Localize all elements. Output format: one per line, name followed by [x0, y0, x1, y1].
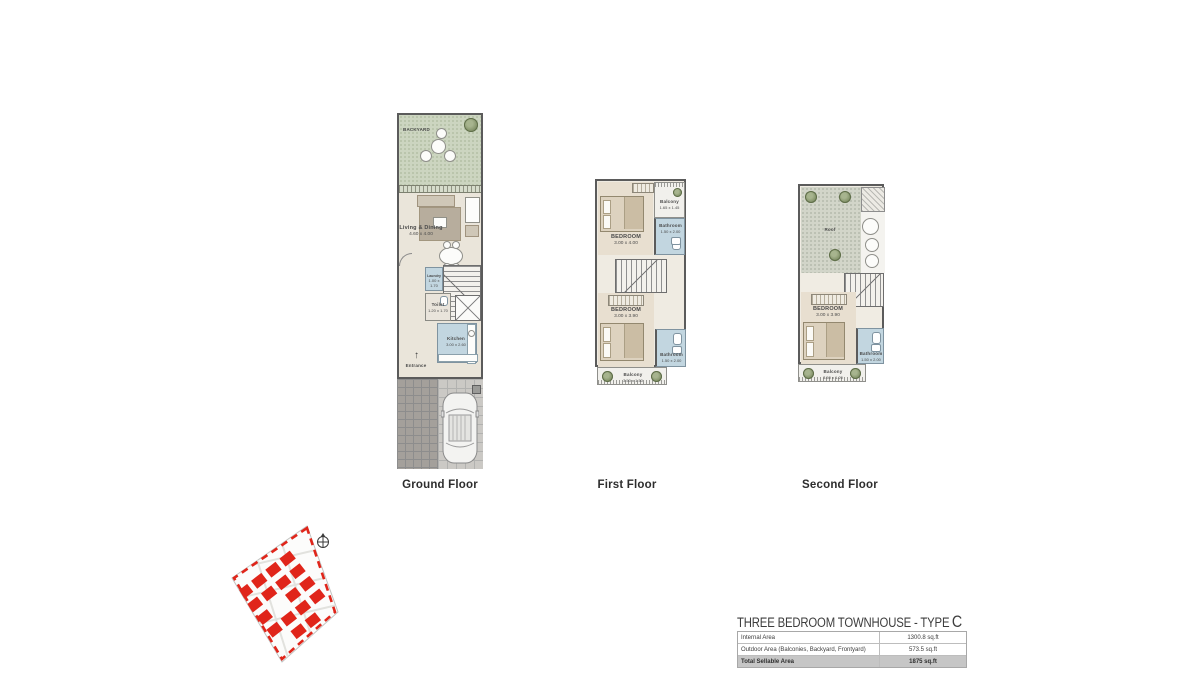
bathroom: Bathroom 1.50 x 2.00 — [856, 328, 884, 364]
bathroom-bottom: Bathroom 1.50 x 2.00 — [655, 329, 686, 367]
bedroom-bottom-dims: 3.00 x 3.90 — [602, 314, 650, 320]
ground-floor-caption: Ground Floor — [380, 479, 500, 491]
bathroom-top: Bathroom 1.50 x 2.00 — [654, 218, 685, 255]
ground-floor-plan: BACKYARD Living & Dining 4.60 x 4.00 — [397, 113, 483, 469]
plant-icon — [803, 368, 814, 379]
bathroom-top-label: Bathroom — [656, 223, 685, 229]
dining-chair-icon — [452, 241, 460, 249]
bedroom-dims: 3.00 x 3.90 — [805, 313, 851, 319]
bedroom-bottom-label: BEDROOM — [602, 307, 650, 314]
pouf-icon — [862, 218, 879, 235]
tree-icon — [464, 118, 478, 132]
balcony-top-dims: 1.65 x 1.45 — [655, 205, 684, 210]
door-swing — [399, 253, 412, 266]
toilet-icon — [872, 332, 881, 344]
bathroom-bottom-dims: 1.50 x 2.00 — [657, 358, 686, 363]
first-built-area: BEDROOM 3.00 x 4.00 Balcony 1.65 x 1.45 … — [595, 179, 686, 367]
second-built-area: Roof BEDROOM 3.00 x 3.90 — [798, 184, 884, 364]
patio-table-icon — [431, 139, 446, 154]
balcony: Balcony 3.50 x 1.20 — [798, 364, 866, 382]
pouf-icon — [865, 238, 879, 252]
row-value: 1875 sq.ft — [879, 656, 966, 667]
plant-icon — [602, 371, 613, 382]
plant-icon — [673, 188, 682, 197]
pouf-icon — [865, 254, 879, 268]
entrance-area: ↑ Entrance — [401, 349, 433, 379]
bedroom-top-label: BEDROOM — [602, 234, 650, 241]
kitchen-dims: 3.00 x 2.60 — [440, 342, 472, 347]
staircase — [615, 259, 667, 293]
driveway — [397, 379, 483, 469]
driveway-pavers — [397, 379, 437, 469]
unit-title: THREE BEDROOM TOWNHOUSE - TYPEC — [737, 612, 955, 632]
dining-chair-icon — [443, 241, 451, 249]
plant-icon — [829, 249, 841, 261]
patio-chair-icon — [436, 128, 447, 139]
laundry-dims: 1.00 x 1.70 — [426, 278, 442, 288]
toilet-dims: 1.20 x 1.70 — [426, 308, 450, 313]
tv-unit-icon — [465, 197, 480, 223]
pergola — [861, 187, 885, 212]
bedroom-top: BEDROOM 3.00 x 4.00 — [598, 182, 653, 255]
roof-terrace: Roof — [801, 187, 861, 273]
bathroom-dims: 1.50 x 2.00 — [858, 357, 884, 362]
backyard-room: BACKYARD — [399, 115, 481, 185]
plant-icon — [651, 371, 662, 382]
dining-table-icon — [439, 247, 463, 265]
first-floor-plan: BEDROOM 3.00 x 4.00 Balcony 1.65 x 1.45 … — [595, 179, 686, 385]
wardrobe — [608, 295, 644, 306]
table-row: Outdoor Area (Balconies, Backyard, Front… — [738, 643, 966, 655]
plant-icon — [805, 191, 817, 203]
plant-icon — [850, 368, 861, 379]
laundry-room: Laundry 1.00 x 1.70 — [425, 267, 443, 291]
balcony-dims: 3.50 x 1.20 — [816, 375, 850, 380]
kitchen-counter — [438, 354, 478, 362]
roof-side-strip — [861, 212, 885, 273]
row-value: 1300.8 sq.ft — [879, 632, 966, 643]
row-value: 573.5 sq.ft — [879, 644, 966, 655]
bed-icon — [600, 323, 644, 361]
kitchen-room: Kitchen 3.00 x 2.60 — [437, 323, 477, 363]
armchair-icon — [465, 225, 479, 237]
bathroom-top-dims: 1.50 x 2.00 — [656, 229, 685, 234]
wardrobe — [811, 294, 847, 305]
living-label: Living & Dining — [399, 225, 443, 232]
bed-icon — [600, 196, 644, 232]
balcony-top: Balcony 1.65 x 1.45 — [654, 182, 685, 218]
second-floor-caption: Second Floor — [780, 479, 900, 491]
toilet-icon — [673, 333, 682, 345]
patio-chair-icon — [420, 150, 432, 162]
shaft — [455, 295, 481, 321]
row-label: Internal Area — [738, 632, 879, 643]
unit-type-letter: C — [952, 612, 962, 631]
unit-title-text: THREE BEDROOM TOWNHOUSE - TYPE — [737, 615, 949, 630]
plant-icon — [839, 191, 851, 203]
table-row-total: Total Sellable Area 1875 sq.ft — [738, 655, 966, 667]
bedroom-bottom: BEDROOM 3.00 x 3.90 — [598, 293, 654, 367]
car-icon — [441, 391, 479, 465]
wardrobe — [632, 183, 654, 193]
sink-icon — [671, 237, 681, 245]
floorplan-sheet: BACKYARD Living & Dining 4.60 x 4.00 — [0, 0, 1200, 680]
site-plan — [222, 512, 350, 670]
fence — [399, 185, 481, 193]
ground-built-area: BACKYARD Living & Dining 4.60 x 4.00 — [397, 113, 483, 379]
bed-icon — [803, 322, 845, 360]
bathroom-bottom-label: Bathroom — [657, 352, 686, 358]
bathroom-label: Bathroom — [858, 351, 884, 357]
first-floor-caption: First Floor — [567, 479, 687, 491]
entrance-label: Entrance — [401, 363, 431, 369]
area-table: Internal Area 1300.8 sq.ft Outdoor Area … — [737, 631, 967, 668]
roof-label: Roof — [815, 227, 845, 233]
balcony-bottom-dims: 3.50 x 1.50 — [616, 378, 650, 383]
table-row: Internal Area 1300.8 sq.ft — [738, 632, 966, 643]
living-dims: 4.60 x 4.00 — [399, 232, 443, 238]
compass-icon — [318, 533, 329, 548]
entrance-arrow-icon: ↑ — [414, 351, 419, 361]
patio-chair-icon — [444, 150, 456, 162]
toilet-room: Toilet 1.20 x 1.70 — [425, 293, 451, 321]
balcony-bottom: Balcony 3.50 x 1.50 — [597, 367, 667, 385]
bedroom: BEDROOM 3.00 x 3.90 — [801, 292, 856, 364]
sofa-icon — [417, 195, 455, 207]
bedroom-top-dims: 3.00 x 4.00 — [602, 241, 650, 247]
backyard-label: BACKYARD — [403, 127, 430, 133]
bedroom-label: BEDROOM — [805, 306, 851, 313]
row-label: Total Sellable Area — [738, 656, 879, 667]
row-label: Outdoor Area (Balconies, Backyard, Front… — [738, 644, 879, 655]
second-floor-plan: Roof BEDROOM 3.00 x 3.90 — [798, 184, 884, 384]
